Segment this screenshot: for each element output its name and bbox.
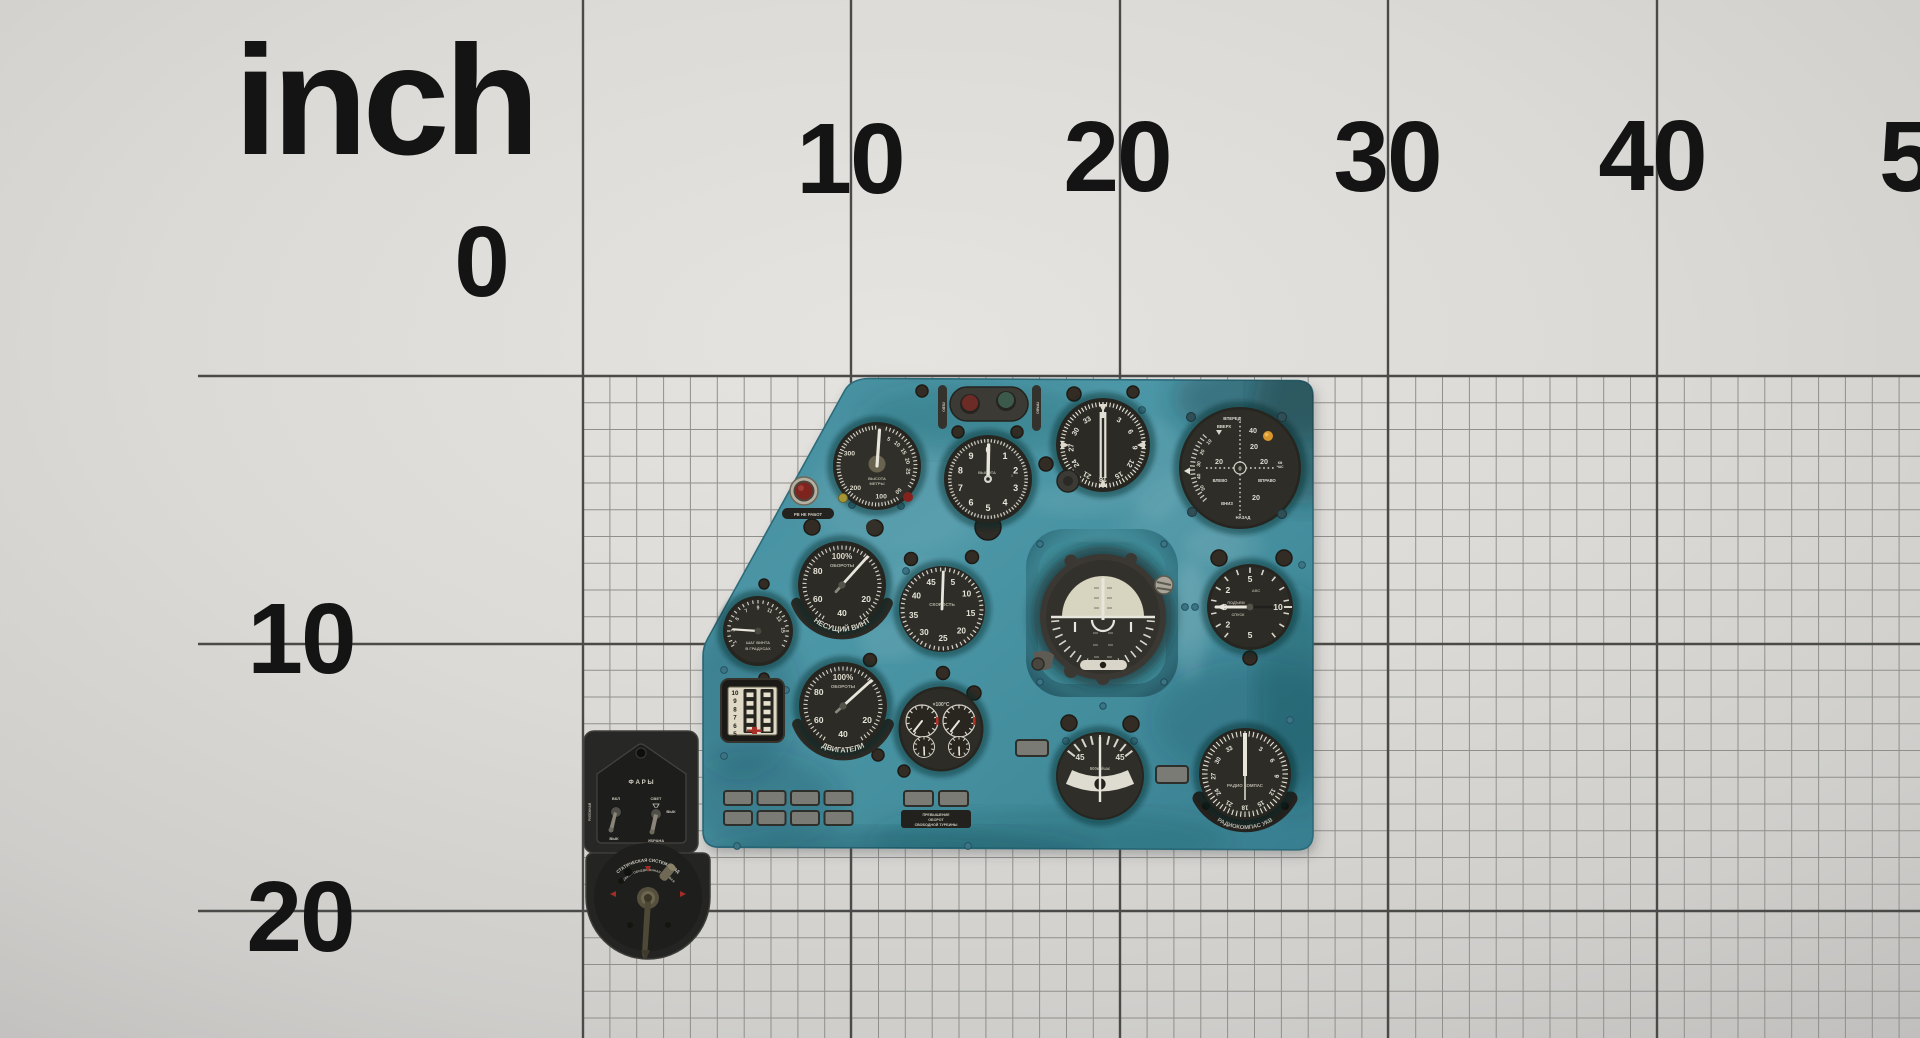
svg-text:ВПЕРЕД: ВПЕРЕД — [1223, 416, 1240, 421]
svg-text:РВ НЕ РАБОТ: РВ НЕ РАБОТ — [794, 512, 823, 517]
svg-text:20: 20 — [1063, 101, 1170, 213]
svg-text:2: 2 — [1226, 619, 1231, 629]
svg-text:2: 2 — [1013, 465, 1018, 475]
svg-text:Ф А Р Ы: Ф А Р Ы — [628, 779, 653, 786]
svg-text:60: 60 — [813, 594, 823, 604]
svg-text:ЧАС: ЧАС — [1277, 465, 1284, 469]
svg-text:9: 9 — [757, 605, 760, 611]
svg-text:1: 1 — [1002, 451, 1007, 461]
svg-text:СВОБОДНОЙ ТУРБИНЫ: СВОБОДНОЙ ТУРБИНЫ — [915, 823, 958, 827]
svg-text:300: 300 — [844, 451, 856, 458]
svg-text:ВПРАВО: ВПРАВО — [1258, 478, 1276, 483]
svg-text:100%: 100% — [832, 552, 852, 561]
svg-text:ВЫК: ВЫК — [609, 836, 619, 841]
svg-text:ПОДЪЕМ: ПОДЪЕМ — [1227, 601, 1244, 605]
svg-text:6: 6 — [733, 723, 737, 730]
svg-text:9: 9 — [1131, 446, 1140, 450]
svg-text:80: 80 — [814, 687, 824, 697]
svg-text:45: 45 — [1115, 753, 1125, 762]
svg-text:2: 2 — [1226, 585, 1231, 595]
svg-text:ПРЕВЫШЕНИЕ: ПРЕВЫШЕНИЕ — [922, 813, 950, 817]
svg-text:АВС: АВС — [1252, 588, 1261, 593]
svg-text:ОБОРОТЫ: ОБОРОТЫ — [830, 563, 855, 568]
svg-text:10: 10 — [1273, 602, 1283, 612]
svg-text:30: 30 — [1196, 461, 1203, 468]
svg-text:30: 30 — [1333, 101, 1440, 213]
svg-text:40: 40 — [1249, 426, 1257, 435]
svg-text:20: 20 — [861, 594, 871, 604]
svg-text:50: 50 — [1879, 101, 1920, 213]
svg-text:ПРАВО: ПРАВО — [1036, 402, 1040, 414]
svg-text:45: 45 — [1075, 753, 1085, 762]
svg-text:0: 0 — [1238, 467, 1241, 473]
svg-text:РУЛЕЖНАЯ: РУЛЕЖНАЯ — [588, 802, 592, 821]
svg-text:40: 40 — [912, 591, 922, 600]
svg-text:80: 80 — [813, 566, 823, 576]
svg-text:18: 18 — [1241, 804, 1248, 811]
svg-text:ВВЕРХ: ВВЕРХ — [1217, 424, 1231, 429]
svg-text:15: 15 — [779, 627, 786, 633]
svg-text:0: 0 — [454, 206, 510, 318]
svg-text:ОБОРОТ: ОБОРОТ — [928, 818, 944, 822]
svg-text:20: 20 — [1250, 442, 1258, 451]
svg-text:27: 27 — [1211, 772, 1218, 779]
svg-text:9: 9 — [1273, 774, 1280, 778]
svg-text:20: 20 — [1252, 493, 1260, 502]
svg-text:×100°C: ×100°C — [933, 702, 950, 708]
svg-text:8: 8 — [733, 706, 737, 713]
svg-text:200: 200 — [850, 485, 862, 492]
svg-text:5: 5 — [1248, 574, 1253, 584]
svg-text:10: 10 — [962, 590, 972, 599]
svg-text:10: 10 — [732, 690, 739, 697]
svg-text:4: 4 — [1002, 498, 1007, 508]
svg-text:ВНИЗ: ВНИЗ — [1221, 501, 1233, 506]
svg-text:25: 25 — [904, 468, 911, 475]
svg-text:20: 20 — [1260, 457, 1268, 466]
svg-text:40: 40 — [837, 608, 847, 618]
svg-text:ВЫК: ВЫК — [666, 809, 676, 814]
svg-text:НАЗАД: НАЗАД — [1236, 515, 1251, 520]
svg-text:УБРАНА: УБРАНА — [648, 838, 664, 843]
svg-text:30: 30 — [920, 628, 930, 637]
svg-text:5: 5 — [1248, 630, 1253, 640]
svg-text:ЛЕВО: ЛЕВО — [942, 402, 946, 412]
svg-text:60: 60 — [814, 715, 824, 725]
svg-text:ВЛЕВО: ВЛЕВО — [1213, 478, 1229, 483]
svg-text:СПУСК: СПУСК — [1232, 613, 1246, 617]
svg-text:ШАГ ВИНТА: ШАГ ВИНТА — [746, 640, 770, 645]
svg-text:3: 3 — [1013, 483, 1018, 493]
svg-text:35: 35 — [909, 611, 919, 620]
svg-text:9: 9 — [733, 698, 737, 705]
svg-text:7: 7 — [733, 715, 737, 722]
svg-text:15: 15 — [966, 609, 976, 618]
svg-text:I: I — [1012, 474, 1013, 478]
svg-text:25: 25 — [938, 634, 948, 643]
svg-text:7: 7 — [958, 483, 963, 493]
svg-text:40: 40 — [1598, 100, 1705, 212]
svg-text:40: 40 — [838, 729, 848, 739]
svg-text:5: 5 — [985, 503, 990, 513]
svg-text:5: 5 — [733, 731, 737, 738]
svg-text:8: 8 — [958, 465, 963, 475]
svg-text:10: 10 — [247, 583, 354, 695]
svg-text:СВЕТ: СВЕТ — [651, 796, 662, 801]
svg-text:10: 10 — [796, 103, 903, 215]
svg-text:20: 20 — [246, 861, 353, 973]
svg-text:5: 5 — [951, 578, 956, 587]
svg-text:9: 9 — [968, 451, 973, 461]
svg-text:100%: 100% — [833, 673, 853, 682]
svg-text:20: 20 — [862, 715, 872, 725]
svg-text:100: 100 — [876, 494, 888, 501]
svg-text:inch: inch — [234, 14, 535, 188]
svg-text:20: 20 — [1215, 457, 1223, 466]
svg-text:20: 20 — [957, 627, 967, 636]
svg-text:ОБОРОТЫ: ОБОРОТЫ — [831, 684, 856, 689]
svg-text:45: 45 — [927, 578, 937, 587]
svg-text:6: 6 — [968, 498, 973, 508]
svg-text:ВКЛ: ВКЛ — [612, 796, 620, 801]
svg-text:МЕТРЫ: МЕТРЫ — [869, 481, 884, 486]
svg-text:В ГРАДУСАХ: В ГРАДУСАХ — [745, 646, 771, 651]
